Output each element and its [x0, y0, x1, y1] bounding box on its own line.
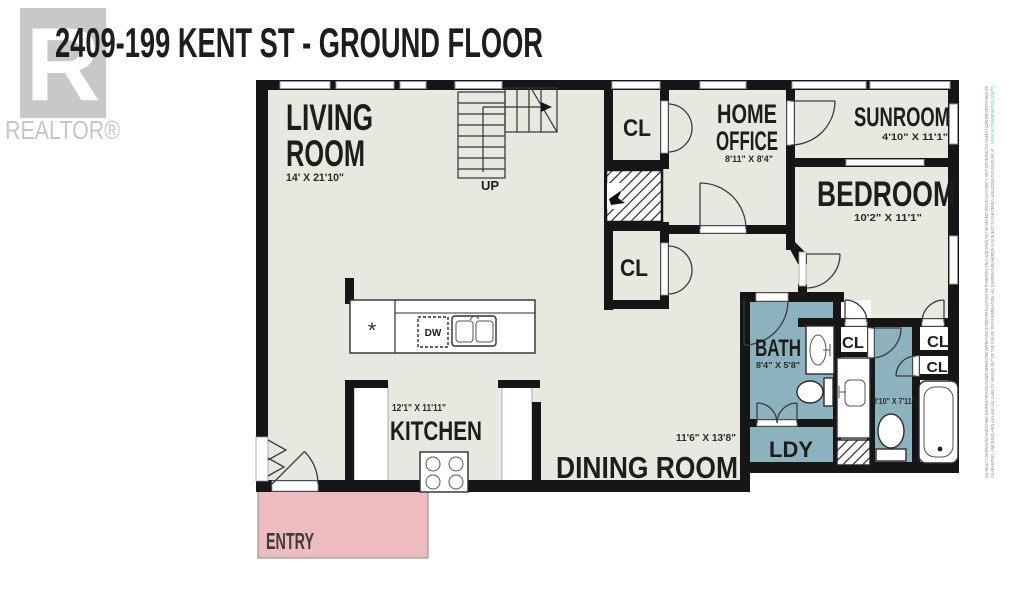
closet2-door-slot [661, 243, 668, 295]
side-door-slot [256, 437, 268, 481]
living-room-label-1: LIVING [286, 97, 373, 138]
closet1-door-slot [661, 101, 668, 153]
dining-label: DINING ROOM [556, 450, 738, 485]
bedroom-dims: 10'2" X 11'1" [854, 213, 922, 224]
floor-plan-drawing: R REALTOR® 2409-199 KENT ST - GROUND FLO… [0, 0, 1024, 591]
wall-closet2-bottom [604, 300, 669, 309]
bathtub-drain [938, 447, 943, 452]
window-closet-top [612, 82, 660, 89]
wall-kitchen-dining [532, 402, 541, 490]
bath-door-slot [756, 293, 788, 301]
bath-label: BATH [755, 335, 801, 362]
bath2-toilet-bowl [878, 414, 904, 448]
window-sunroom-bedroom [846, 160, 924, 166]
window-sunroom-right [950, 104, 958, 144]
home-office-label-1: HOME [717, 99, 777, 129]
window-sunroom-2 [870, 82, 950, 89]
closet-r2-label: CL [927, 359, 948, 376]
page-title: 2409-199 KENT ST - GROUND FLOOR [55, 19, 543, 66]
sunroom-door-slot [787, 101, 794, 145]
kitchen-counter-right [502, 386, 532, 482]
office-door-slot [700, 226, 746, 233]
bath-toilet-tank [824, 378, 833, 406]
living-room-dims: 14' X 21'10" [286, 172, 344, 184]
closet-mid-label: CL [842, 335, 864, 352]
window-office-top [700, 82, 746, 89]
wall-chase-bottom [604, 222, 669, 231]
entry-label: ENTRY [266, 528, 314, 554]
laundry-label: LDY [769, 437, 813, 462]
window-sunroom-1 [792, 82, 866, 89]
bath-toilet-bowl [797, 381, 823, 403]
closet2-label: CL [620, 255, 648, 282]
wall-bedroom-left [786, 162, 795, 250]
dishwasher-label: DW [425, 328, 442, 339]
bedroom-label: BEDROOM [817, 175, 955, 214]
wall-left [256, 80, 268, 492]
entry-door-slot [272, 481, 318, 491]
disclaimer-line-2: GUARANTEES, AND DISCLAIMS ANY AND ALL LI… [990, 148, 995, 478]
kitchen-dims: 12'1" X 11'11" [392, 403, 446, 414]
fridge-symbol: * [368, 318, 377, 343]
wall-kitchen-left [345, 380, 354, 488]
wall-bath-left [740, 292, 750, 492]
closet-r2-door-slot [913, 356, 919, 376]
wall-closet1-bottom [604, 160, 669, 169]
wall-kitchen-seg-left [345, 380, 388, 388]
bath2-dims: 8'10" X 7'11" [873, 396, 915, 406]
closet-r1-label: CL [927, 334, 949, 351]
closet-mid-door-slot [845, 319, 867, 326]
bath2-toilet-tank [876, 449, 906, 461]
window-bedroom-right [950, 236, 958, 284]
sunroom-label: SUNROOM [854, 102, 950, 132]
wall-closet-mid-bottom [835, 352, 869, 357]
dining-dims: 11'6" X 13'8" [676, 433, 736, 444]
bedroom-door-slot [799, 252, 806, 286]
window-living-3 [400, 82, 426, 89]
wall-bath-top [740, 292, 844, 302]
disclaimer-line-1: ALL REALTY, DIMENSIONS AND OTHER INFORMA… [984, 86, 989, 478]
wall-kitchen-seg-right [498, 380, 540, 388]
fireplace-chase [606, 170, 662, 222]
bath2-door-slot [868, 328, 874, 358]
kitchen-label: KITCHEN [390, 416, 482, 446]
bath-dims: 8'4" X 5'8" [756, 360, 800, 370]
window-stair-top [455, 82, 502, 89]
realtor-logo-text: REALTOR® [5, 115, 120, 145]
kitchen-counter-left [354, 386, 388, 482]
stairs-up-label: UP [481, 178, 499, 193]
living-room-label-2: ROOM [286, 133, 365, 174]
closet1-label: CL [623, 115, 651, 142]
disclaimer: ALL REALTY, DIMENSIONS AND OTHER INFORMA… [984, 86, 995, 478]
closet-right-door-slot [922, 319, 944, 326]
storage-hatch [837, 440, 870, 465]
window-living-2 [336, 82, 394, 89]
home-office-label-2: OFFICE [716, 126, 778, 156]
home-office-dims: 8'11" X 8'4" [725, 154, 773, 165]
window-living-1 [280, 82, 330, 89]
floor-plan-page: R REALTOR® 2409-199 KENT ST - GROUND FLO… [0, 0, 1024, 591]
disclaimer-url: WWW.NEXTDOORPHOTOS.COM/TC [990, 86, 995, 144]
sunroom-dims: 4'10" X 11'1" [882, 132, 948, 143]
